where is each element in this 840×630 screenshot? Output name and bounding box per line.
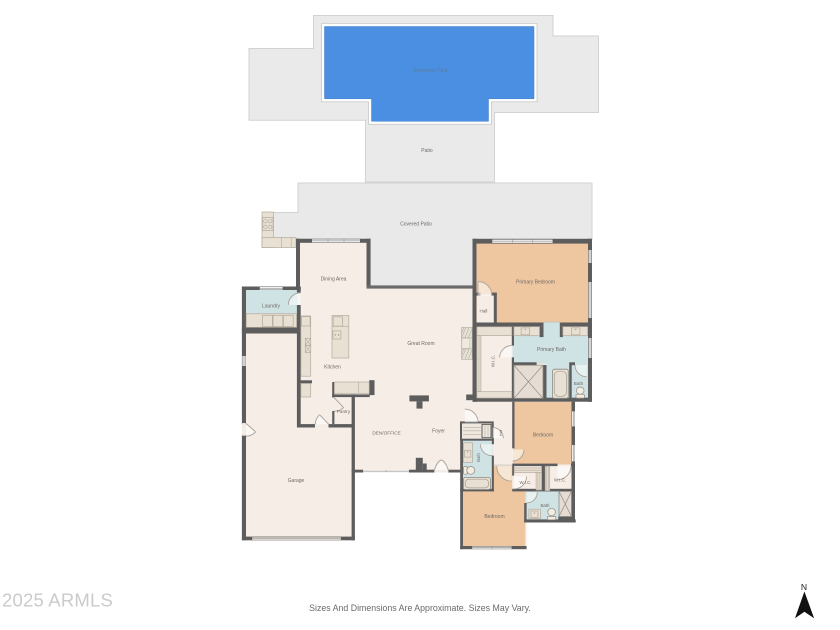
- svg-text:Hall: Hall: [480, 308, 488, 313]
- svg-text:Swimming Pool: Swimming Pool: [413, 68, 447, 74]
- svg-text:Bedroom: Bedroom: [533, 433, 553, 439]
- svg-text:Pantry: Pantry: [337, 409, 351, 414]
- svg-text:Dining Area: Dining Area: [321, 277, 347, 283]
- svg-text:Great Room: Great Room: [407, 341, 434, 347]
- svg-text:Hall: Hall: [499, 430, 503, 437]
- svg-text:2025 ARMLS: 2025 ARMLS: [2, 590, 113, 611]
- svg-text:W.I.C.: W.I.C.: [520, 480, 532, 485]
- svg-text:Laundry: Laundry: [262, 304, 281, 310]
- svg-text:Foyer: Foyer: [432, 429, 445, 435]
- svg-text:Kitchen: Kitchen: [324, 364, 341, 370]
- svg-text:Bath: Bath: [476, 453, 481, 462]
- svg-text:Primary Bedroom: Primary Bedroom: [516, 280, 555, 286]
- svg-text:W.I.C.: W.I.C.: [490, 355, 495, 368]
- svg-text:N: N: [801, 582, 807, 592]
- svg-text:Patio: Patio: [421, 148, 433, 154]
- svg-text:W.I.C.: W.I.C.: [554, 477, 566, 482]
- svg-text:Sizes And Dimensions Are Appro: Sizes And Dimensions Are Approximate. Si…: [309, 603, 531, 613]
- svg-text:Primary Bath: Primary Bath: [537, 347, 566, 353]
- svg-text:Garage: Garage: [288, 478, 305, 484]
- svg-text:DEN/OFFICE: DEN/OFFICE: [372, 431, 400, 436]
- svg-text:Bath: Bath: [540, 503, 550, 508]
- svg-text:Bedroom: Bedroom: [484, 514, 504, 520]
- svg-text:Bath: Bath: [574, 381, 584, 386]
- svg-text:Covered Patio: Covered Patio: [400, 222, 432, 228]
